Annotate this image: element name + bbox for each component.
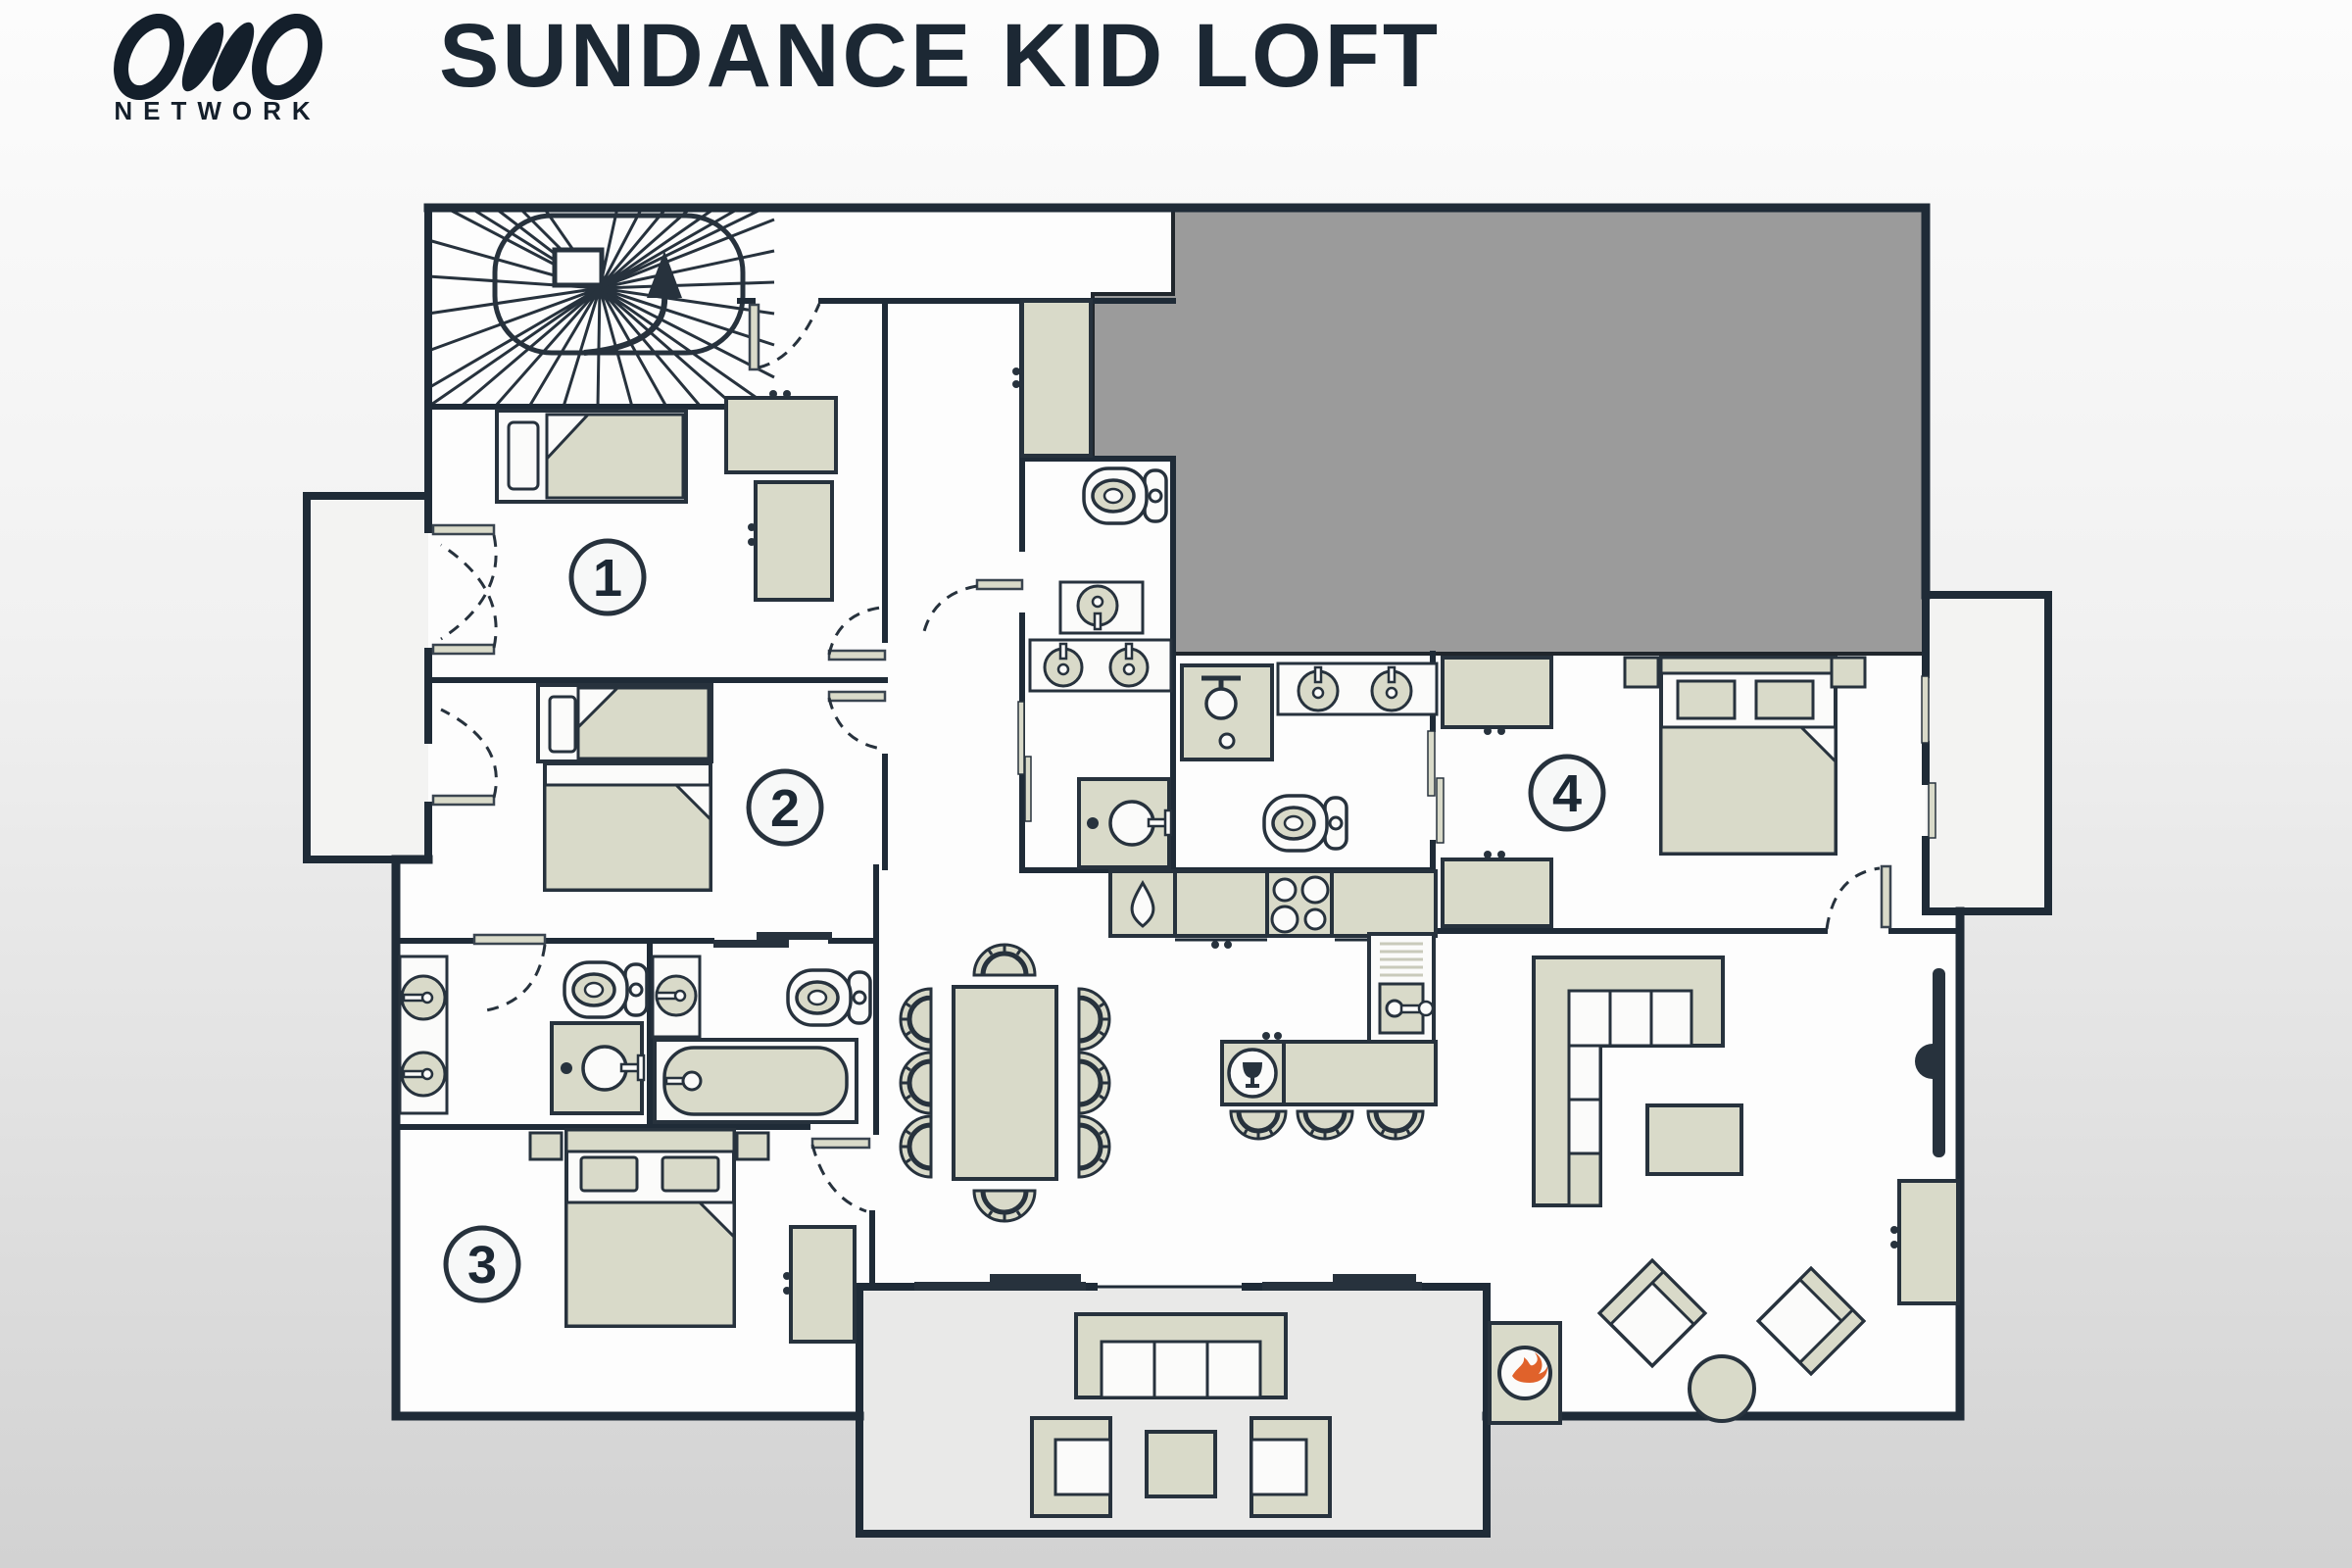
room-number: 4 [1552,764,1582,823]
wardrobe [1443,859,1551,926]
sofa-cushion [1102,1342,1154,1397]
burner [1272,906,1298,932]
door-leaf [1882,866,1890,927]
balcony-door-leaf [433,645,494,654]
door-leaf [829,692,885,701]
outdoor-table [1147,1432,1215,1496]
balcony-door-leaf [433,796,494,805]
sliding-door-panel [1333,1274,1416,1282]
outdoor-armchair [1251,1418,1330,1516]
stair-landing [555,250,602,285]
room-number: 1 [593,549,622,608]
sliding-door-panel [757,932,832,940]
sliding-door-panel [914,1282,1086,1291]
window [1018,702,1024,774]
room-badge-1: 1 [571,541,644,613]
sliding-door-panel [990,1274,1081,1282]
pillow [550,697,575,752]
toilet [1264,796,1347,851]
sofa-end [1569,1153,1600,1205]
door-leaf [812,1139,869,1148]
tap [1389,667,1395,682]
headboard [1661,658,1836,673]
tap [657,993,676,999]
sofa-cushion [1610,991,1651,1046]
wardrobe [726,398,836,472]
room-number: 2 [770,779,800,838]
logo-o-right [248,12,326,102]
sliding-door-panel [713,940,789,948]
nightstand [1625,658,1658,687]
toilet [788,970,870,1025]
floor-plan: 1 2 3 4 [307,208,2048,1534]
sofa-cushion [1207,1342,1260,1397]
pillow [509,422,538,489]
nightstand [737,1133,768,1159]
toilet [564,962,647,1017]
door-leaf [474,935,545,944]
wardrobe [756,482,832,600]
door-leaf [977,580,1022,589]
window [1025,757,1031,821]
sliding-door-panel [1437,778,1444,843]
tap [1060,644,1066,659]
sliding-door-panel [1428,731,1435,796]
sofa-cushion [1569,991,1610,1046]
room-badge-2: 2 [749,771,821,844]
bed-duvet [566,1202,734,1326]
sofa-cushion [1154,1342,1207,1397]
pillow [1756,681,1813,718]
tap [1095,613,1101,629]
ovo-logo: NETWORK [110,12,326,125]
room-number: 3 [467,1236,497,1295]
round-side-table [1690,1356,1754,1421]
sofa-cushion [1651,991,1691,1046]
drain [1220,734,1234,748]
pillow [581,1157,637,1191]
door-leaf [750,305,759,369]
pillow [662,1157,718,1191]
tap [1126,644,1132,659]
basin [583,1047,626,1090]
room-badge-3: 3 [446,1228,518,1300]
toilet [1084,468,1166,523]
logo-o-left [110,12,188,102]
coffee-table [1647,1105,1741,1174]
window [1922,676,1929,743]
outdoor-armchair [1032,1418,1110,1516]
balcony-door-leaf [433,525,494,534]
wardrobe [1443,658,1551,727]
bedroom-2 [538,685,711,890]
floor-plan-canvas: NETWORK SUNDANCE KID LOFT [0,0,2352,1568]
shower-head [1206,689,1236,718]
tv [1933,968,1945,1157]
wardrobe [1022,301,1091,456]
pillow [1678,681,1735,718]
room-badge-4: 4 [1531,757,1603,829]
header: NETWORK SUNDANCE KID LOFT [110,6,1441,125]
burner [1302,877,1328,903]
dining-table [954,987,1056,1179]
window [1929,783,1935,838]
bed-duvet [545,785,710,890]
headboard [566,1130,734,1151]
page-title: SUNDANCE KID LOFT [439,6,1441,106]
sliding-door-panel [1262,1282,1422,1291]
wardrobe [791,1227,855,1342]
tap [1315,667,1321,682]
left-balcony [307,496,428,859]
nightstand [1832,658,1865,687]
burner [1305,909,1325,929]
burner [1274,879,1296,901]
basin [1110,802,1153,845]
fireplace [1490,1323,1560,1423]
bed-duvet [1661,727,1836,854]
sofa-cushion [1569,1100,1600,1153]
right-balcony [1926,595,2048,911]
nightstand [530,1133,562,1159]
roof-void [1093,208,1926,654]
door-leaf [829,651,885,660]
sideboard [1899,1181,1958,1303]
logo-subtitle: NETWORK [114,96,320,125]
sofa-cushion [1569,1046,1600,1100]
tap-knob [683,1072,701,1090]
